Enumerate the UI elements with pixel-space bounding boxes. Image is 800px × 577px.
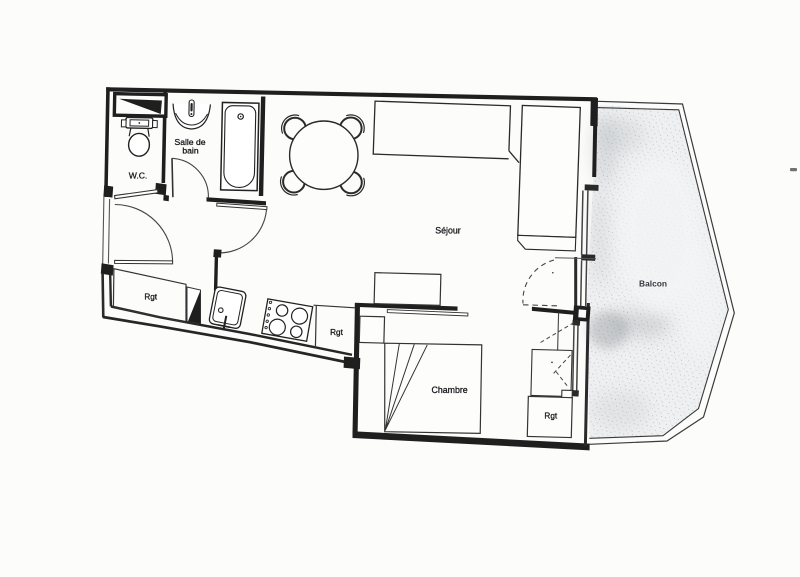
svg-text:Balcon: Balcon bbox=[639, 279, 667, 289]
svg-text:Séjour: Séjour bbox=[435, 226, 460, 236]
svg-text:W.C.: W.C. bbox=[129, 170, 148, 180]
svg-text:bain: bain bbox=[182, 146, 198, 156]
svg-text:Chambre: Chambre bbox=[432, 385, 468, 395]
svg-text:Rgt: Rgt bbox=[544, 411, 557, 420]
svg-text:Rgt: Rgt bbox=[144, 292, 157, 301]
svg-text:Rgt: Rgt bbox=[330, 328, 343, 337]
